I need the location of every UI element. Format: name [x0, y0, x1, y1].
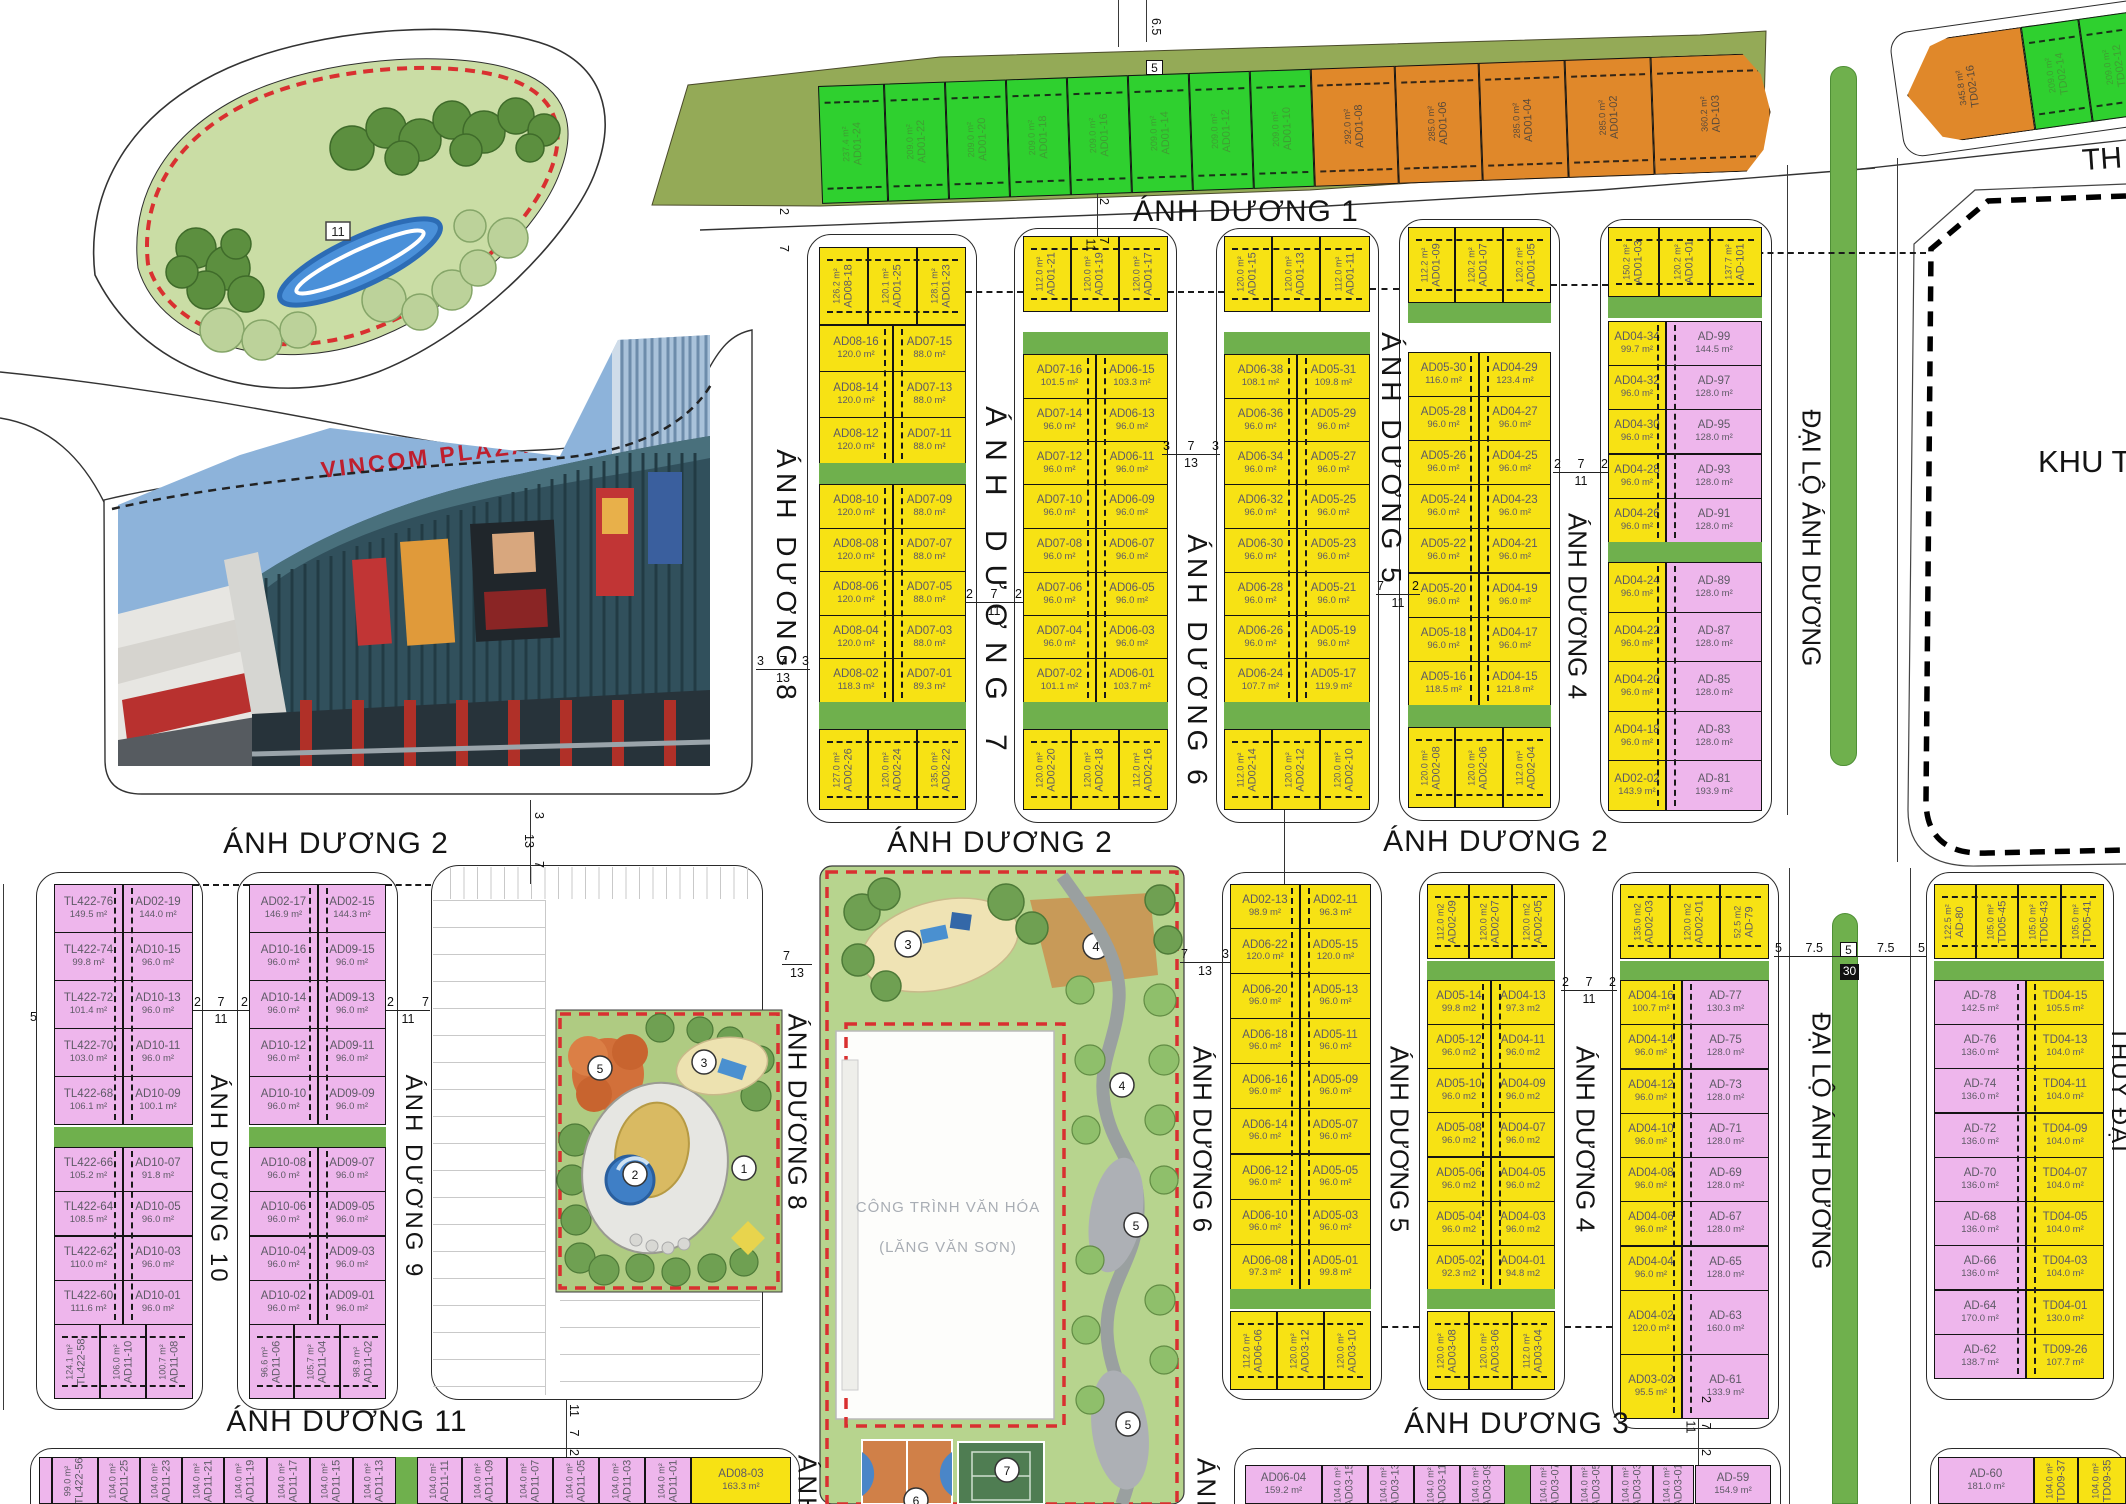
svg-text:2: 2 [632, 1168, 639, 1182]
svg-text:5: 5 [597, 1062, 604, 1076]
svg-text:CÔNG TRÌNH VĂN HÓA: CÔNG TRÌNH VĂN HÓA [856, 1199, 1040, 1216]
svg-text:3: 3 [904, 937, 911, 952]
svg-text:3: 3 [701, 1056, 708, 1070]
svg-text:7: 7 [1004, 1464, 1011, 1478]
svg-text:(LĂNG VĂN SƠN): (LĂNG VĂN SƠN) [879, 1239, 1017, 1256]
svg-text:5: 5 [1133, 1219, 1140, 1233]
svg-text:1: 1 [741, 1162, 748, 1176]
svg-text:5: 5 [1125, 1418, 1132, 1432]
svg-text:6: 6 [913, 1494, 920, 1504]
svg-text:4: 4 [1119, 1079, 1126, 1093]
